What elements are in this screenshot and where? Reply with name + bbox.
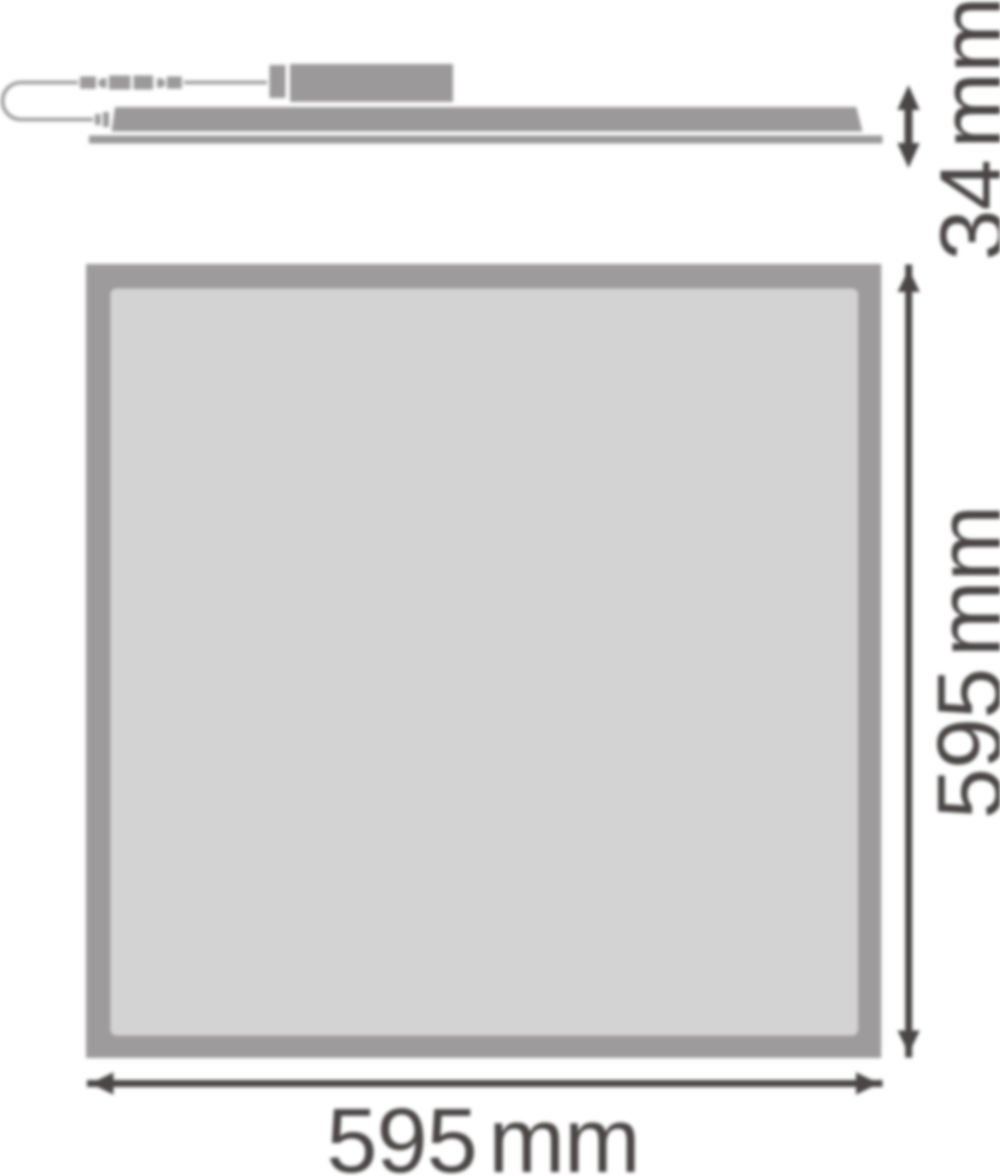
svg-text:595 mm: 595 mm bbox=[919, 506, 1000, 819]
svg-text:34 mm: 34 mm bbox=[922, 0, 1000, 261]
svg-text:595 mm: 595 mm bbox=[326, 1090, 639, 1176]
